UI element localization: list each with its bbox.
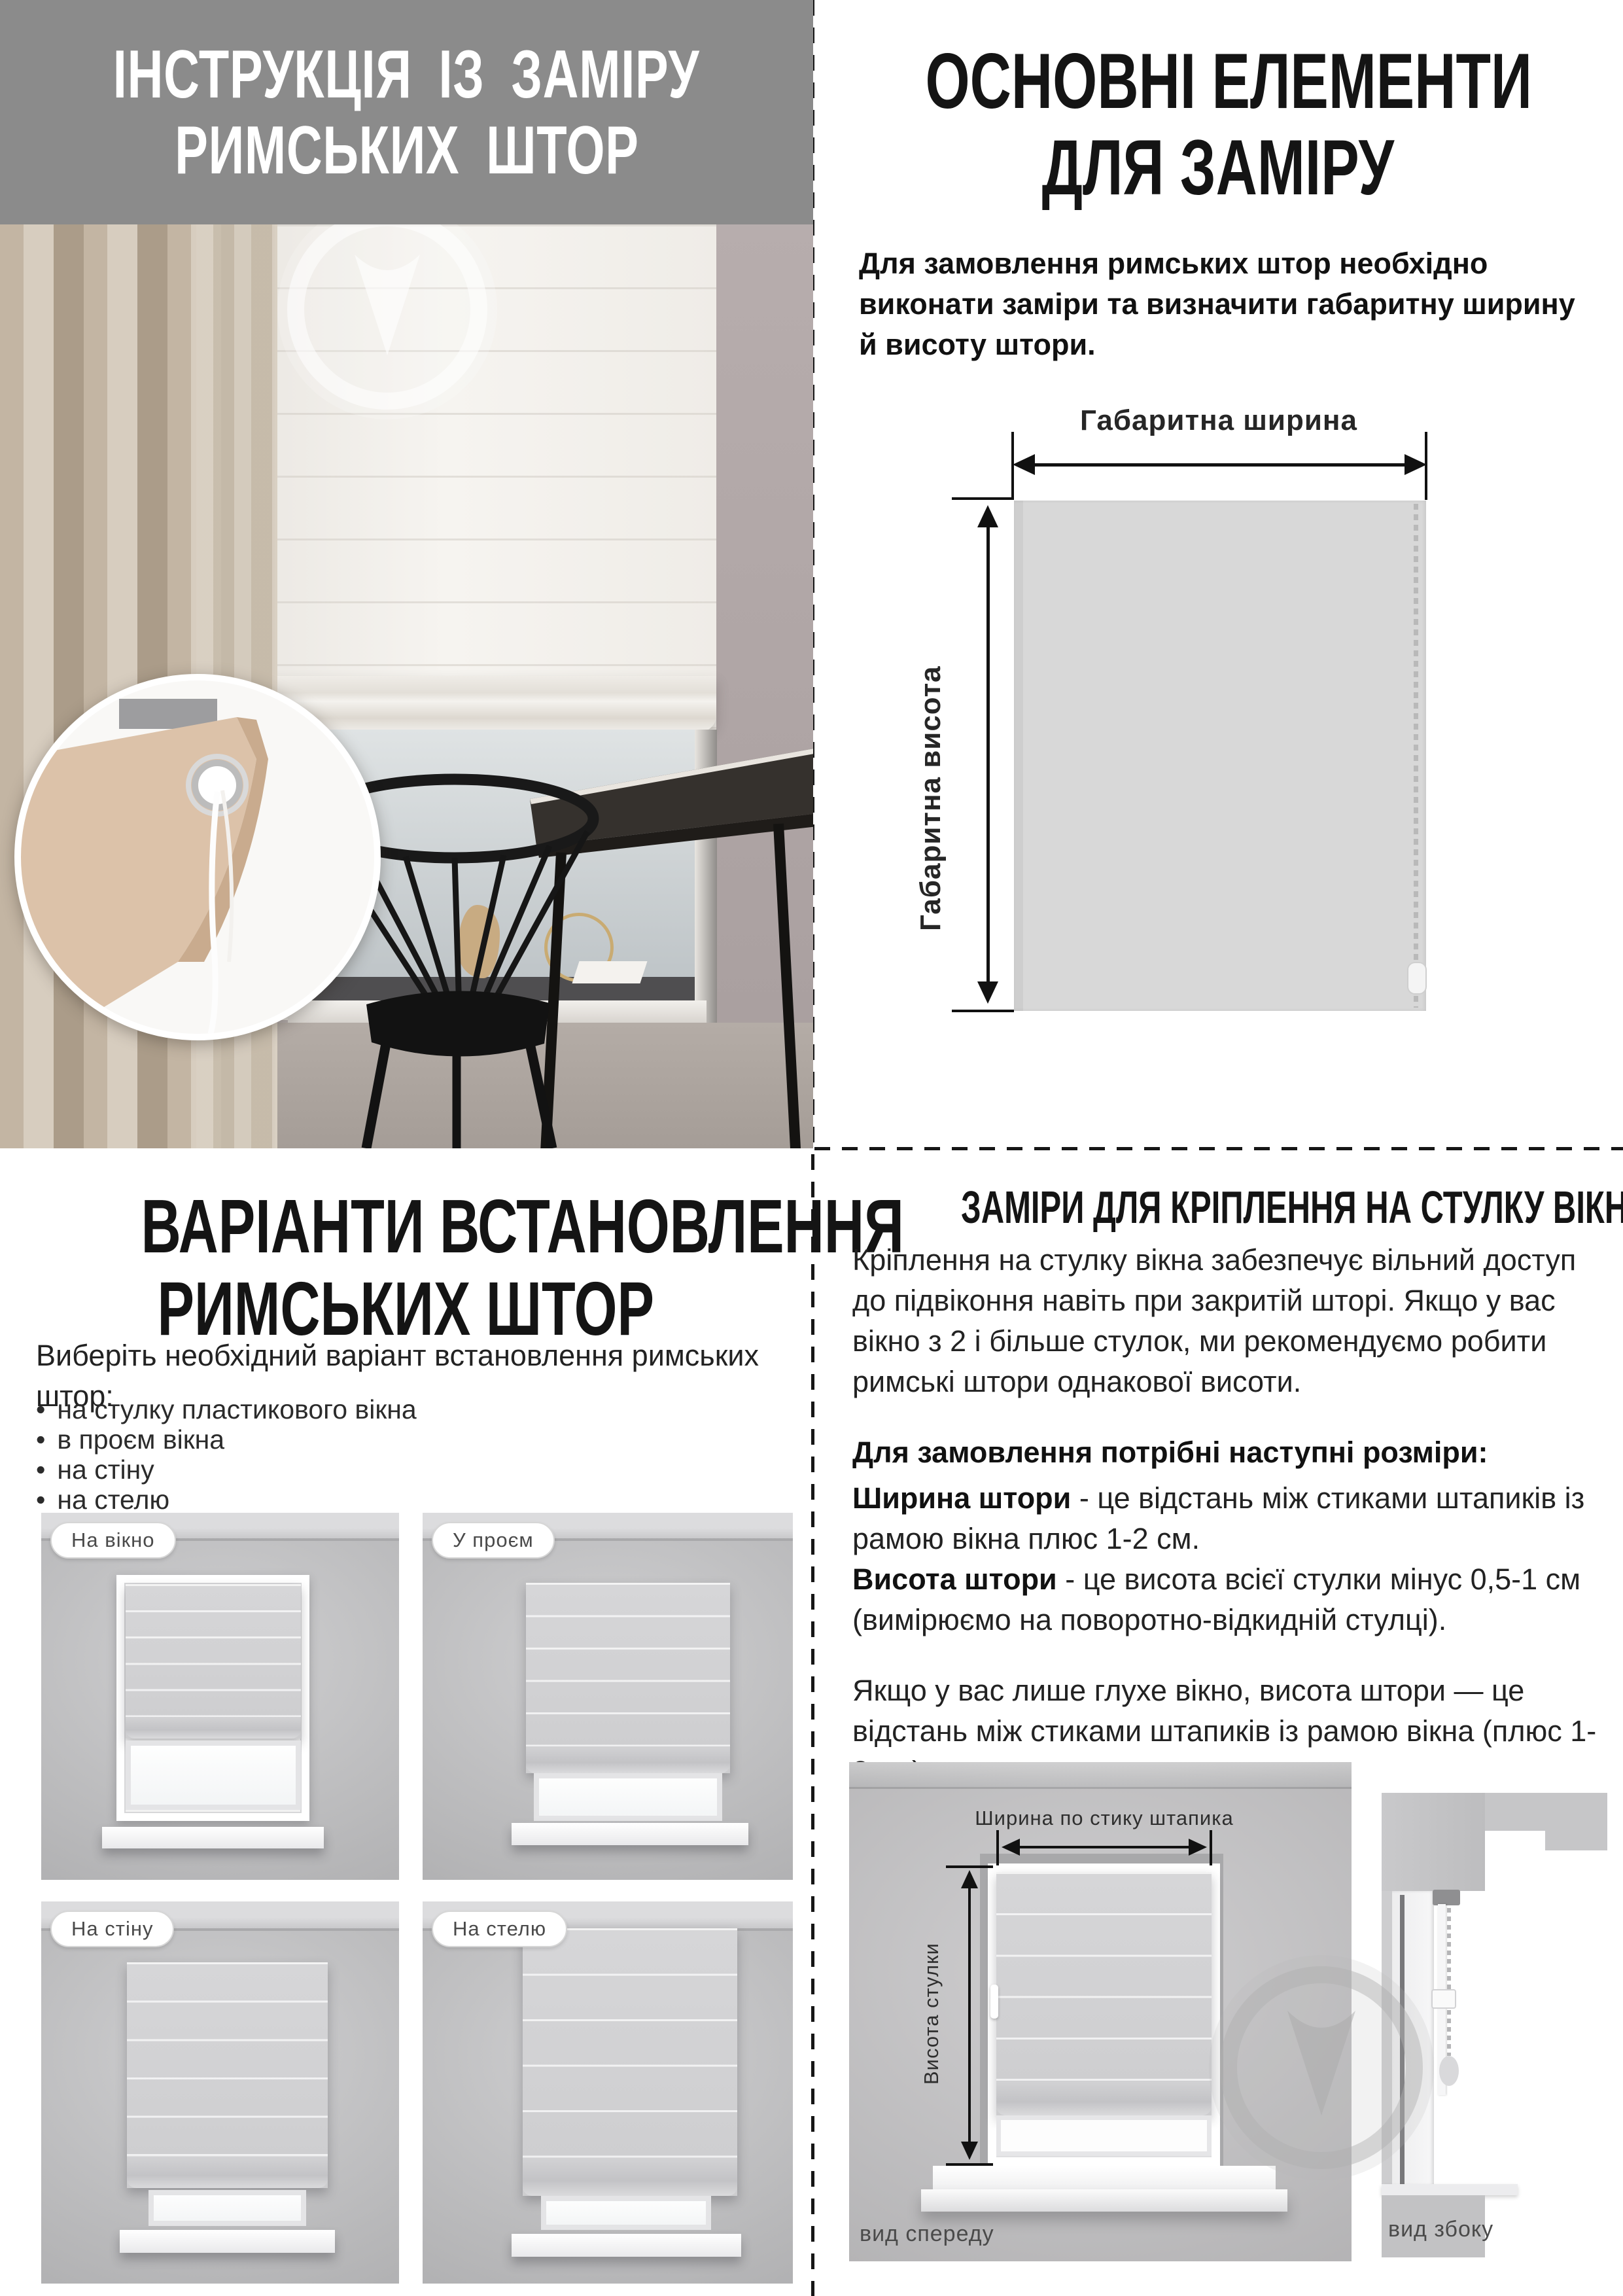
- variant4-sill: [512, 2234, 741, 2257]
- side-sill-lip: [1382, 2184, 1518, 2195]
- variant1-sill: [102, 1827, 324, 1849]
- elements-title: ОСНОВНІ ЕЛЕМЕНТИ ДЛЯ ЗАМІРУ: [813, 38, 1623, 211]
- variant-card-opening: У проєм: [423, 1513, 793, 1880]
- height-arrowhead-bottom: [977, 981, 998, 1004]
- install-title-line1: ВАРІАНТИ ВСТАНОВЛЕННЯ: [141, 1185, 904, 1267]
- hero-photo: [0, 224, 813, 1148]
- height-tick-top: [952, 497, 1014, 500]
- photo-blind-bottom-folds: [268, 676, 716, 732]
- variant4-label-pill: На стелю: [432, 1911, 567, 1947]
- instruction-sheet: ІНСТРУКЦІЯ ІЗ ЗАМІРУ РИМСЬКИХ ШТОР: [0, 0, 1623, 2296]
- front-sill-top: [933, 2166, 1276, 2189]
- variant1-blind-fold: [126, 1717, 301, 1739]
- header-banner: ІНСТРУКЦІЯ ІЗ ЗАМІРУ РИМСЬКИХ ШТОР: [0, 0, 813, 224]
- sash-width-arrow: [1011, 1846, 1198, 1848]
- variant4-blind: [523, 1928, 737, 2196]
- install-options-list: на стулку пластикового вікна в проєм вік…: [36, 1394, 756, 1515]
- sash-para1: Кріплення на стулку вікна забезпечує віл…: [852, 1240, 1592, 1402]
- install-option-opening: в проєм вікна: [36, 1424, 756, 1455]
- front-frame-handle: [990, 1985, 998, 2019]
- sash-height-dim-label: Висота стулки: [920, 1906, 943, 2122]
- height-tick-bottom: [952, 1010, 1014, 1012]
- install-option-ceiling: на стелю: [36, 1485, 756, 1515]
- variant3-blind-fold: [127, 2157, 327, 2188]
- side-top-block: [1382, 1793, 1485, 1891]
- height-arrow: [986, 517, 990, 991]
- variant-card-window: На вікно: [41, 1513, 399, 1880]
- elements-intro: Для замовлення римських штор необхідно в…: [859, 243, 1598, 365]
- side-handle: [1431, 1989, 1456, 2009]
- variant4-blind-fold: [523, 2158, 737, 2195]
- header-title-line2: РИМСЬКИХ ШТОР: [89, 113, 725, 188]
- variant2-blind: [526, 1583, 729, 1774]
- front-blind-fold: [996, 2081, 1212, 2115]
- diagram-blind-pull: [1407, 962, 1427, 995]
- sash-height-tick-top: [946, 1865, 993, 1868]
- sash-height-arrow: [968, 1879, 971, 2153]
- front-view-label: вид спереду: [860, 2221, 994, 2247]
- variant2-label-pill: У проєм: [432, 1522, 555, 1559]
- variant3-label-pill: На стіну: [50, 1911, 174, 1947]
- variant3-glass: [148, 2190, 306, 2226]
- header-title-line1: ІНСТРУКЦІЯ ІЗ ЗАМІРУ: [5, 37, 808, 113]
- sash-height-arrowhead-top: [961, 1870, 978, 1888]
- variant1-blind: [126, 1584, 301, 1739]
- sash-width-term: Ширина штори: [852, 1481, 1071, 1515]
- variant1-label-pill: На вікно: [50, 1522, 176, 1559]
- sash-title: ЗАМІРИ ДЛЯ КРІПЛЕННЯ НА СТУЛКУ ВІКНА: [813, 1181, 1623, 1233]
- front-glass: [996, 2115, 1212, 2156]
- variant2-blind-fold: [526, 1746, 729, 1773]
- width-arrowhead-right: [1405, 454, 1427, 475]
- sash-width-arrowhead-right: [1189, 1839, 1207, 1856]
- side-view-label: вид збоку: [1388, 2217, 1493, 2242]
- install-title: ВАРІАНТИ ВСТАНОВЛЕННЯ РИМСЬКИХ ШТОР: [0, 1185, 811, 1350]
- side-headrail: [1433, 1890, 1460, 1905]
- watermark-logo-bottom: [1200, 1947, 1442, 2189]
- variant1-glass: [126, 1740, 301, 1810]
- overall-width-label: Габаритна ширина: [1013, 404, 1425, 437]
- front-sill-front: [921, 2189, 1287, 2212]
- width-arrow: [1024, 463, 1416, 467]
- detail-inset-circle: [14, 674, 381, 1040]
- sash-height-arrowhead-bottom: [961, 2142, 978, 2160]
- elements-title-line1: ОСНОВНІ ЕЛЕМЕНТИ: [926, 38, 1532, 124]
- sash-width-para: Ширина штори - це відстань між стиками ш…: [852, 1478, 1598, 1559]
- elements-section: ОСНОВНІ ЕЛЕМЕНТИ ДЛЯ ЗАМІРУ Для замовлен…: [813, 0, 1623, 1147]
- variant3-sill: [120, 2230, 334, 2253]
- side-top-step: [1545, 1831, 1607, 1850]
- sash-sizes-lead: Для замовлення потрібні наступні розміри…: [852, 1432, 1592, 1473]
- variant2-glass: [534, 1773, 723, 1821]
- sash-width-dim-label: Ширина по стику штапика: [954, 1807, 1255, 1830]
- variant-card-ceiling: На стелю: [423, 1901, 793, 2284]
- variant4-glass: [541, 2196, 711, 2231]
- overall-height-label: Габаритна висота: [915, 615, 947, 981]
- variant3-blind: [127, 1962, 327, 2188]
- sash-height-tick-bottom: [946, 2163, 993, 2166]
- sash-height-para: Висота штори - це висота всієї стулки мі…: [852, 1559, 1598, 1640]
- sash-section: ЗАМІРИ ДЛЯ КРІПЛЕННЯ НА СТУЛКУ ВІКНА Крі…: [813, 1147, 1623, 2296]
- install-section: ВАРІАНТИ ВСТАНОВЛЕННЯ РИМСЬКИХ ШТОР Вибе…: [0, 1147, 811, 2296]
- install-option-wall: на стіну: [36, 1455, 756, 1485]
- height-arrowhead-top: [977, 505, 998, 527]
- sash-width-tick-left: [996, 1830, 999, 1865]
- variant2-sill: [512, 1823, 748, 1845]
- sash-width-arrowhead-left: [1002, 1839, 1020, 1856]
- width-arrowhead-left: [1013, 454, 1035, 475]
- sash-title-text: ЗАМІРИ ДЛЯ КРІПЛЕННЯ НА СТУЛКУ ВІКНА: [961, 1181, 1623, 1233]
- diagram-blind-chain: [1414, 504, 1418, 1008]
- sash-height-term: Висота штори: [852, 1563, 1057, 1596]
- side-chain: [1447, 1908, 1451, 2056]
- sash-width-tick-right: [1210, 1830, 1212, 1865]
- variant-card-wall: На стіну: [41, 1901, 399, 2284]
- detail-inset-graphic: [21, 680, 374, 1034]
- front-blind: [996, 1872, 1212, 2115]
- install-option-sash: на стулку пластикового вікна: [36, 1394, 756, 1424]
- elements-title-line2: ДЛЯ ЗАМІРУ: [1042, 124, 1394, 211]
- diagram-blind: [1014, 501, 1426, 1011]
